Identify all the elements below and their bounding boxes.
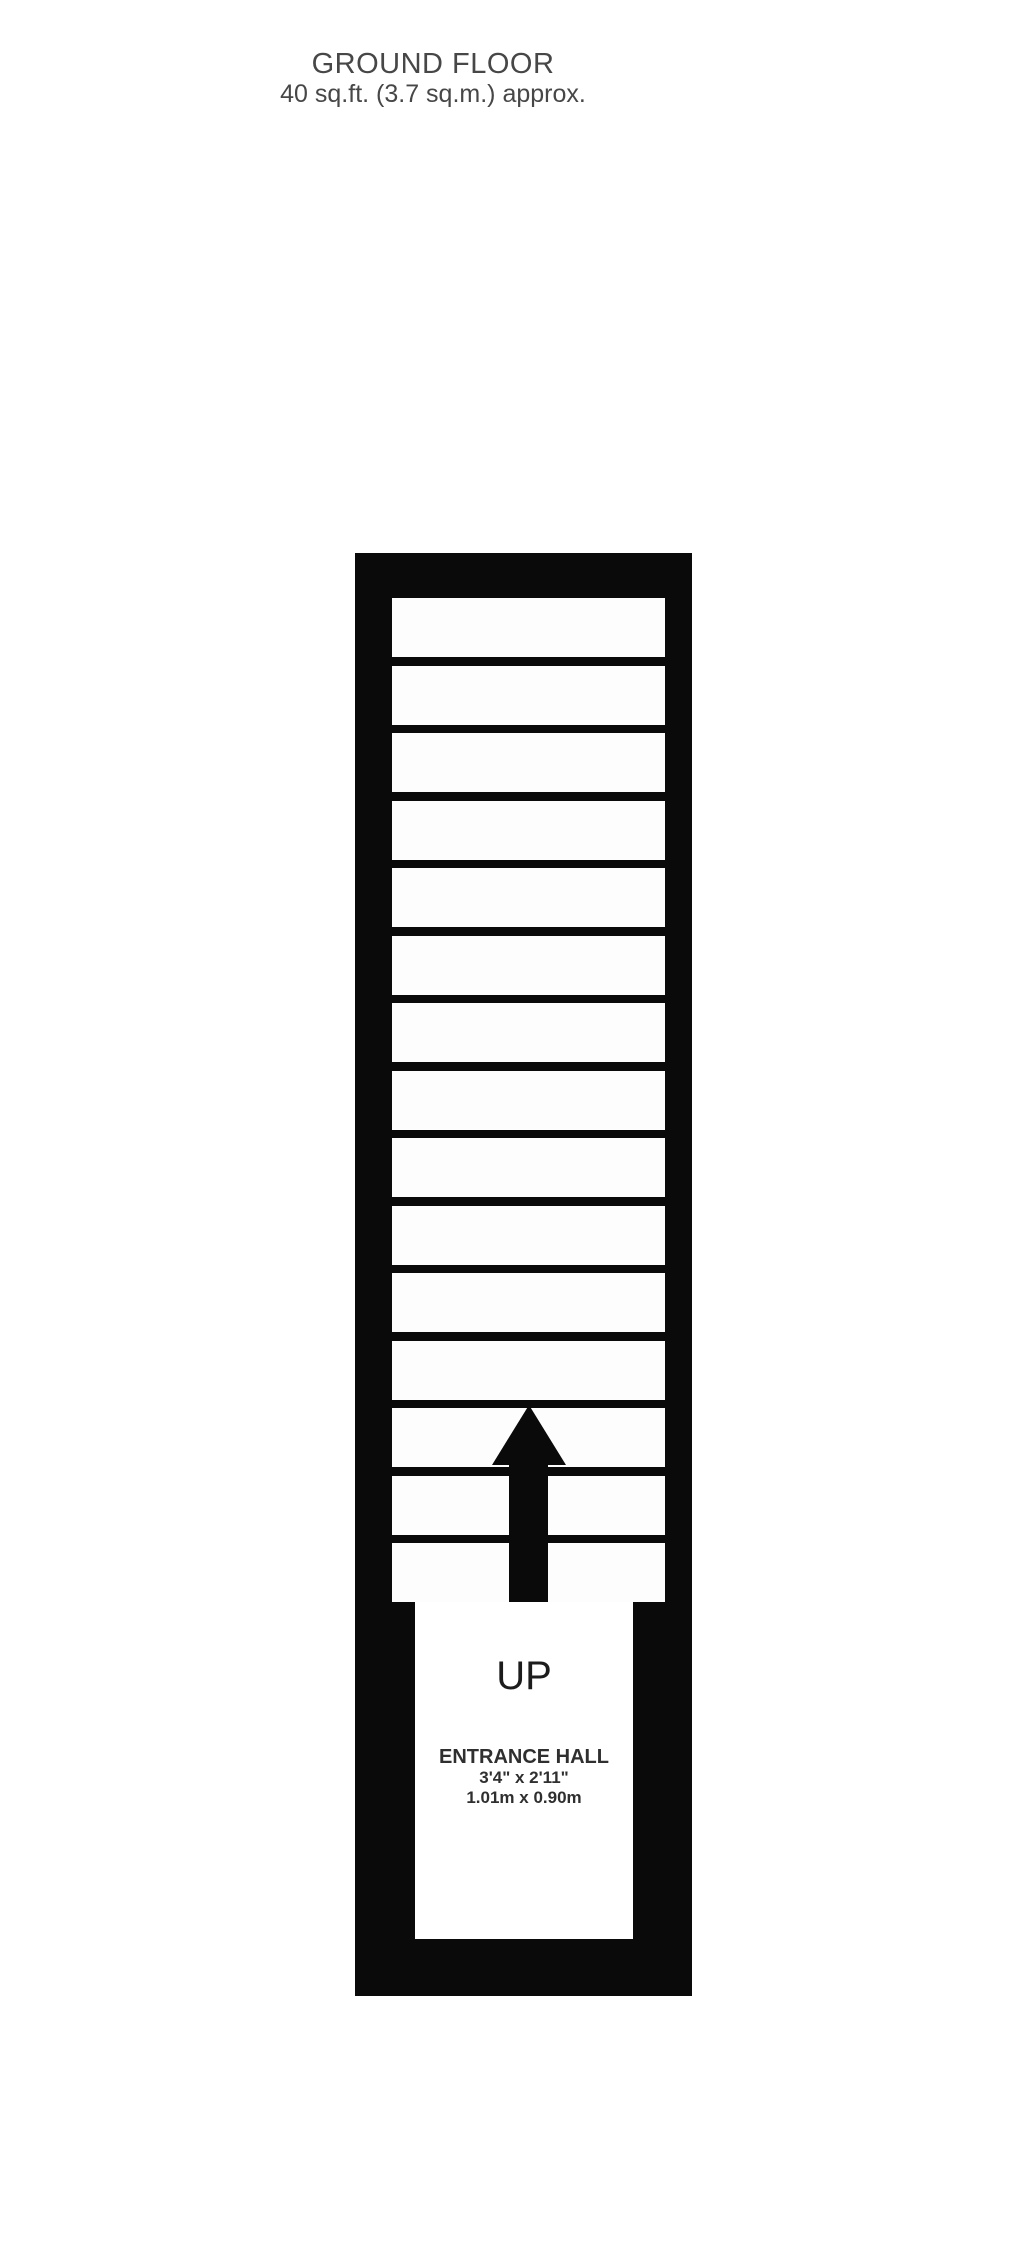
up-arrow-icon [492, 1405, 566, 1602]
floorplan-page: GROUND FLOOR 40 sq.ft. (3.7 sq.m.) appro… [0, 0, 1024, 2264]
room-name: ENTRANCE HALL [415, 1746, 633, 1768]
stair-tread [392, 1138, 665, 1197]
stair-tread [392, 1341, 665, 1400]
up-arrow-head [492, 1405, 566, 1465]
floor-plan-outline: UP ENTRANCE HALL 3'4" x 2'11" 1.01m x 0.… [355, 553, 692, 1996]
floor-area-label: 40 sq.ft. (3.7 sq.m.) approx. [133, 80, 733, 108]
stair-tread [392, 1003, 665, 1062]
stair-tread [392, 1273, 665, 1332]
stair-tread [392, 801, 665, 860]
stair-tread [392, 666, 665, 725]
stair-tread [392, 598, 665, 657]
stair-tread [392, 733, 665, 792]
stair-tread [392, 936, 665, 995]
stair-tread [392, 868, 665, 927]
floor-title: GROUND FLOOR [133, 48, 733, 80]
stairs-direction-label: UP [415, 1654, 633, 1698]
up-arrow-shaft [509, 1463, 548, 1602]
stair-tread [392, 1206, 665, 1265]
room-dimensions-imperial: 3'4" x 2'11" [415, 1768, 633, 1788]
stair-tread [392, 1071, 665, 1130]
room-dimensions-metric: 1.01m x 0.90m [415, 1788, 633, 1808]
plan-header: GROUND FLOOR 40 sq.ft. (3.7 sq.m.) appro… [133, 48, 733, 108]
entrance-hall-room: UP ENTRANCE HALL 3'4" x 2'11" 1.01m x 0.… [415, 1602, 633, 1939]
